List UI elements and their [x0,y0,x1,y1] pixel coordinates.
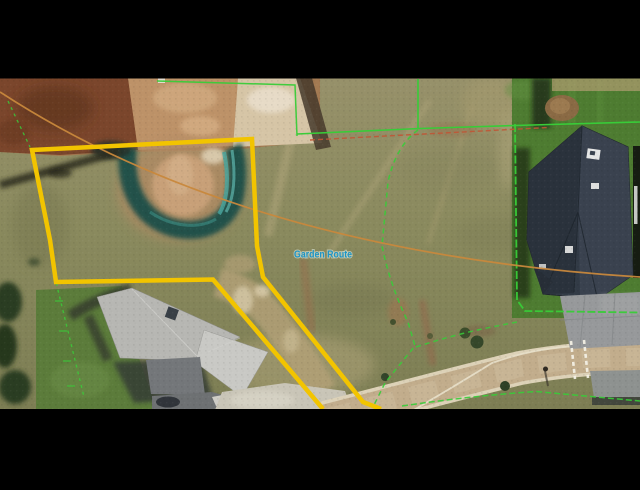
letterbox-bottom [0,409,640,490]
aerial-photo: Garden Route [0,0,640,490]
street-label: Garden Route [294,250,352,261]
letterbox-top [0,0,640,79]
map-viewport[interactable]: Garden Route [0,0,640,490]
